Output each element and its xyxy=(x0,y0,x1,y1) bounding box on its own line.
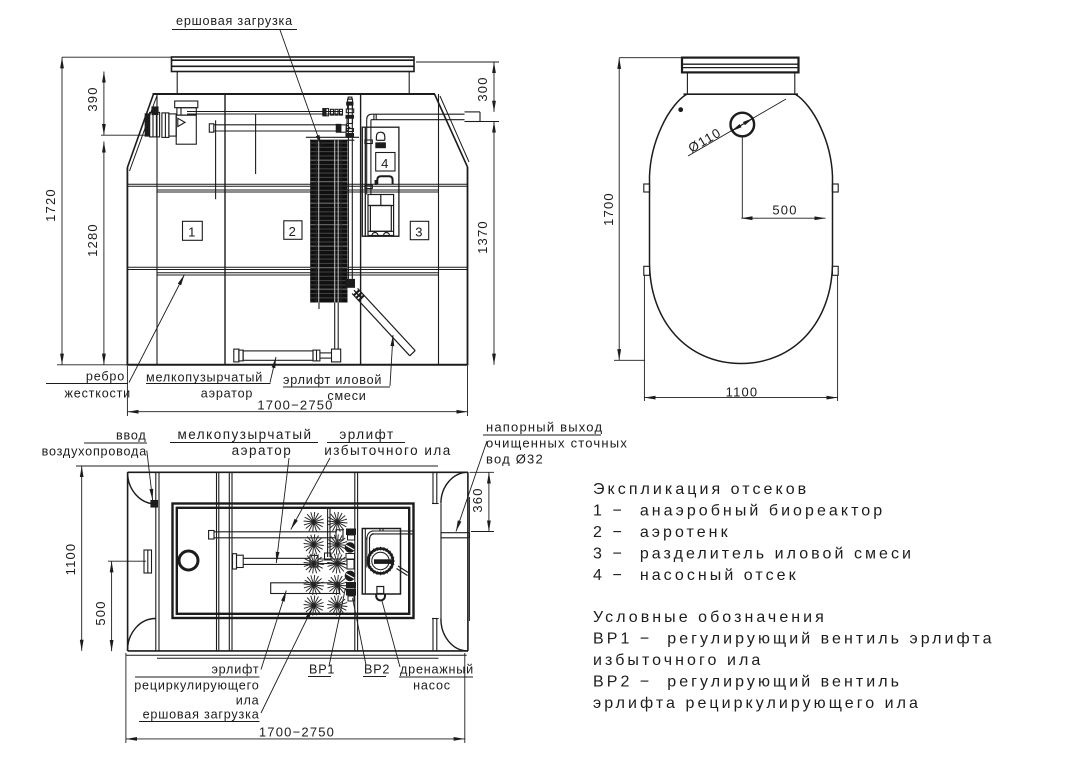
svg-text:рециркулирующего: рециркулирующего xyxy=(134,679,259,693)
svg-text:ила: ила xyxy=(236,694,260,708)
svg-text:2 − аэротенк: 2 − аэротенк xyxy=(593,524,731,541)
svg-text:очищенных сточных: очищенных сточных xyxy=(486,436,628,451)
svg-text:4 − насосный отсек: 4 − насосный отсек xyxy=(593,567,799,584)
svg-text:Условные обозначения: Условные обозначения xyxy=(593,609,827,626)
svg-text:аэратор: аэратор xyxy=(232,443,293,458)
svg-text:1 − анаэробный биореактор: 1 − анаэробный биореактор xyxy=(593,503,885,520)
svg-text:500: 500 xyxy=(772,203,797,218)
svg-text:избыточного ила: избыточного ила xyxy=(324,443,452,458)
svg-text:1700: 1700 xyxy=(601,192,616,226)
svg-text:300: 300 xyxy=(475,76,490,101)
svg-text:эрлифт: эрлифт xyxy=(211,663,259,677)
svg-text:ВР2 − регулирующий вентиль: ВР2 − регулирующий вентиль xyxy=(593,674,902,691)
svg-text:воздухопровода: воздухопровода xyxy=(42,445,147,459)
svg-text:ершовая загрузка: ершовая загрузка xyxy=(176,14,293,28)
svg-text:1720: 1720 xyxy=(43,188,58,222)
svg-text:1700−2750: 1700−2750 xyxy=(259,725,335,740)
svg-text:аэратор: аэратор xyxy=(201,387,253,401)
svg-text:избыточного ила: избыточного ила xyxy=(593,652,763,669)
svg-text:мелкопузырчатый: мелкопузырчатый xyxy=(177,427,312,442)
svg-text:1100: 1100 xyxy=(63,543,78,576)
svg-text:Экспликация отсеков: Экспликация отсеков xyxy=(593,481,809,498)
svg-text:ВР1: ВР1 xyxy=(309,663,335,677)
svg-text:эрлифт иловой: эрлифт иловой xyxy=(283,373,382,387)
svg-text:390: 390 xyxy=(85,86,100,111)
svg-text:дренажный: дренажный xyxy=(400,663,474,677)
svg-text:напорный выход: напорный выход xyxy=(486,420,603,435)
svg-text:вод Ø32: вод Ø32 xyxy=(486,452,544,467)
svg-text:4: 4 xyxy=(381,156,389,171)
svg-text:2: 2 xyxy=(289,224,297,239)
svg-text:жесткости: жесткости xyxy=(65,387,131,401)
svg-text:1: 1 xyxy=(188,225,196,240)
svg-text:насос: насос xyxy=(413,679,451,693)
svg-text:1700−2750: 1700−2750 xyxy=(257,398,333,413)
svg-text:эрлифт: эрлифт xyxy=(339,427,394,442)
svg-text:ребро: ребро xyxy=(86,370,125,384)
svg-text:эрлифта рециркулирующего ила: эрлифта рециркулирующего ила xyxy=(593,695,921,712)
svg-text:1100: 1100 xyxy=(726,384,759,399)
svg-text:3: 3 xyxy=(415,225,423,240)
svg-text:360: 360 xyxy=(470,487,485,512)
svg-text:ВР1 − регулирующий вентиль эр: ВР1 − регулирующий вентиль эрлифта xyxy=(593,631,995,648)
svg-text:мелкопузырчатый: мелкопузырчатый xyxy=(146,371,263,385)
svg-text:3 − разделитель иловой смеси: 3 − разделитель иловой смеси xyxy=(593,546,914,563)
svg-text:ершовая загрузка: ершовая загрузка xyxy=(143,708,260,722)
svg-text:1280: 1280 xyxy=(85,223,100,257)
svg-text:ввод: ввод xyxy=(116,429,147,443)
svg-text:500: 500 xyxy=(93,600,108,625)
svg-text:ВР2: ВР2 xyxy=(364,663,390,677)
svg-text:1370: 1370 xyxy=(475,220,490,254)
svg-text:смеси: смеси xyxy=(327,389,366,403)
